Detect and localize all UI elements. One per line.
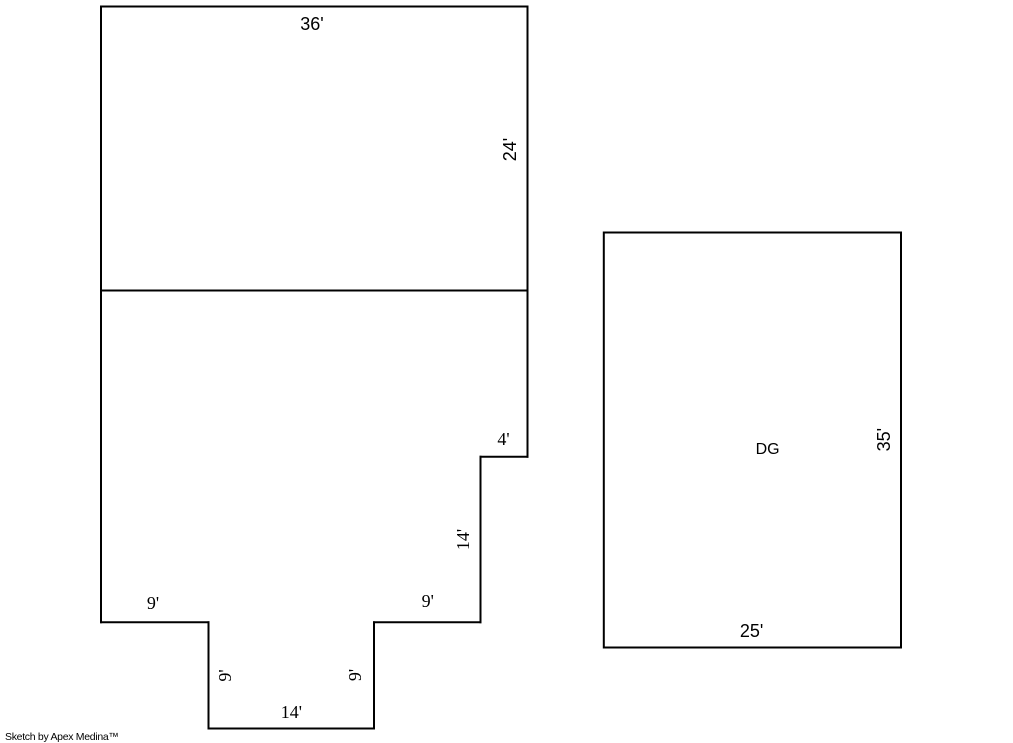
- svg-text:Sketch by Apex Medina™: Sketch by Apex Medina™: [5, 731, 119, 743]
- svg-text:9': 9': [345, 669, 365, 681]
- svg-text:9': 9': [215, 669, 235, 681]
- svg-text:35': 35': [874, 428, 894, 451]
- svg-text:24': 24': [500, 138, 520, 161]
- svg-text:36': 36': [300, 14, 323, 34]
- svg-text:DG: DG: [756, 441, 780, 458]
- svg-text:4': 4': [497, 429, 509, 449]
- svg-text:14': 14': [453, 529, 473, 550]
- svg-text:9': 9': [422, 591, 434, 611]
- svg-text:9': 9': [147, 593, 159, 613]
- svg-text:14': 14': [281, 702, 302, 722]
- svg-text:25': 25': [740, 621, 763, 641]
